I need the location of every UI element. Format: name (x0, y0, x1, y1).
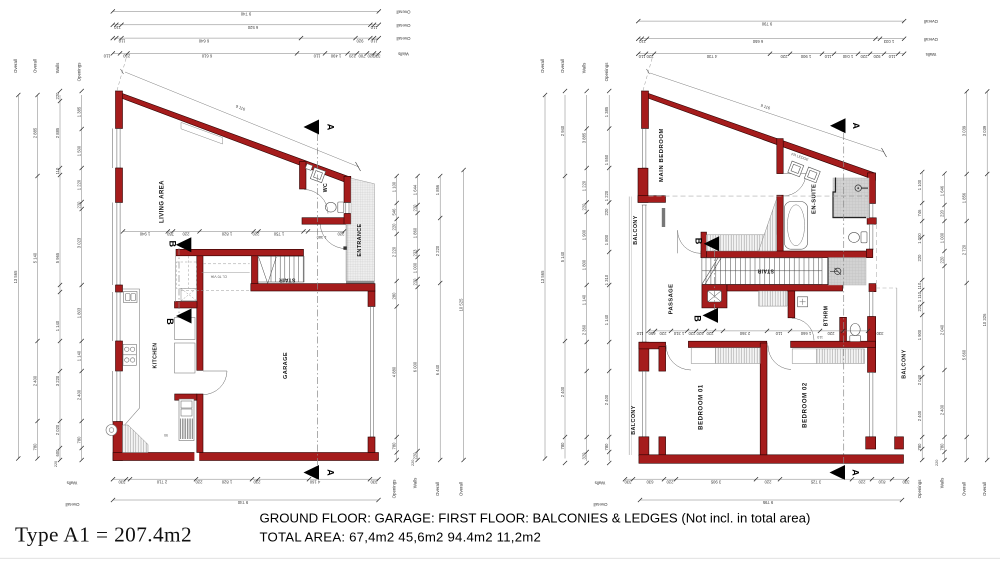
svg-text:110: 110 (55, 167, 60, 174)
svg-text:780: 780 (939, 443, 944, 451)
svg-text:220: 220 (688, 331, 696, 336)
svg-text:2 710: 2 710 (156, 479, 167, 484)
svg-text:1 140: 1 140 (77, 350, 82, 361)
svg-text:220: 220 (780, 54, 788, 59)
svg-text:Overall: Overall (924, 19, 938, 24)
svg-text:Overall: Overall (540, 59, 545, 73)
svg-text:PASSAGE: PASSAGE (669, 284, 675, 315)
svg-text:600: 600 (55, 449, 60, 457)
svg-text:220: 220 (77, 201, 82, 209)
svg-text:220: 220 (706, 331, 714, 336)
svg-text:2 720: 2 720 (962, 244, 967, 255)
svg-text:3 039: 3 039 (962, 125, 967, 136)
svg-text:A: A (326, 469, 336, 476)
svg-text:220: 220 (54, 461, 58, 467)
svg-text:700: 700 (358, 54, 366, 59)
svg-text:1 860: 1 860 (412, 227, 417, 238)
svg-text:TOTAL AREA: 67,4m2 45,6m2 94.4: TOTAL AREA: 67,4m2 45,6m2 94.4m2 11,2m2 (260, 530, 542, 545)
svg-text:220: 220 (858, 479, 866, 484)
svg-text:2 020: 2 020 (55, 424, 60, 435)
svg-text:4 880: 4 880 (392, 366, 397, 377)
svg-text:110: 110 (370, 38, 377, 43)
svg-text:1 100: 1 100 (392, 181, 397, 192)
svg-text:Overall: Overall (962, 482, 967, 496)
svg-text:2 400: 2 400 (77, 389, 82, 400)
svg-text:ENTRANCE: ENTRANCE (357, 223, 363, 256)
svg-text:330: 330 (370, 479, 378, 484)
svg-text:110: 110 (638, 39, 645, 44)
svg-text:2 220: 2 220 (435, 245, 440, 256)
svg-text:1 800: 1 800 (582, 259, 587, 270)
svg-text:1 856: 1 856 (435, 184, 440, 195)
svg-text:1 310: 1 310 (673, 331, 684, 336)
svg-text:2 400: 2 400 (560, 386, 565, 397)
svg-text:KITCHEN: KITCHEN (153, 343, 159, 369)
svg-text:220: 220 (195, 479, 203, 484)
svg-text:220: 220 (939, 256, 944, 264)
svg-text:10 525: 10 525 (458, 298, 463, 311)
svg-text:220: 220 (412, 452, 417, 460)
svg-text:110: 110 (118, 38, 125, 43)
svg-text:LIVING AREA: LIVING AREA (160, 180, 166, 223)
svg-text:110: 110 (638, 54, 645, 59)
svg-text:780: 780 (77, 436, 82, 444)
svg-text:1 385: 1 385 (77, 106, 82, 117)
svg-text:Walls: Walls (66, 481, 77, 486)
svg-text:110: 110 (113, 25, 120, 30)
svg-text:6 610: 6 610 (201, 54, 212, 59)
svg-text:Overall: Overall (397, 10, 411, 15)
svg-text:GROUND FLOOR: GARAGE: FIRST FL: GROUND FLOOR: GARAGE: FIRST FLOOR: BALCO… (260, 510, 811, 525)
svg-text:3 905: 3 905 (710, 479, 721, 484)
svg-text:2 360: 2 360 (582, 324, 587, 335)
svg-text:GARAGE: GARAGE (283, 352, 289, 379)
svg-text:1 033: 1 033 (883, 39, 894, 44)
svg-text:1 310: 1 310 (604, 274, 609, 285)
svg-text:Overall: Overall (66, 502, 80, 507)
svg-text:220: 220 (182, 232, 190, 237)
svg-text:780: 780 (560, 442, 565, 450)
svg-text:1 220: 1 220 (582, 180, 587, 191)
svg-text:3 725: 3 725 (810, 479, 821, 484)
svg-text:Type A1 = 207.4m2: Type A1 = 207.4m2 (15, 523, 192, 547)
svg-text:Walls: Walls (55, 62, 60, 73)
svg-text:330: 330 (118, 479, 126, 484)
svg-text:90: 90 (164, 433, 168, 437)
svg-text:2 040: 2 040 (917, 374, 922, 385)
svg-text:2 400: 2 400 (917, 410, 922, 421)
svg-text:780: 780 (392, 442, 397, 450)
svg-text:220: 220 (55, 92, 60, 100)
svg-text:650: 650 (648, 331, 656, 336)
svg-text:220: 220 (252, 232, 260, 237)
svg-text:A: A (851, 469, 861, 476)
svg-text:6 520: 6 520 (247, 25, 258, 30)
svg-text:5 140: 5 140 (560, 251, 565, 262)
svg-text:A: A (326, 124, 336, 131)
svg-text:780: 780 (32, 443, 37, 451)
svg-text:3 023: 3 023 (77, 237, 82, 248)
svg-text:5 660: 5 660 (962, 349, 967, 360)
svg-text:B: B (694, 238, 704, 245)
svg-text:1 000: 1 000 (412, 262, 417, 273)
svg-text:B: B (165, 318, 175, 325)
svg-text:1 490: 1 490 (330, 54, 341, 59)
svg-text:750: 750 (166, 232, 174, 237)
svg-text:220: 220 (412, 204, 417, 212)
svg-text:1 140: 1 140 (582, 294, 587, 305)
svg-text:220: 220 (337, 232, 345, 237)
svg-text:520: 520 (696, 331, 704, 336)
svg-text:1 380: 1 380 (316, 235, 327, 240)
svg-text:1 500: 1 500 (77, 145, 82, 156)
svg-text:220: 220 (917, 304, 922, 312)
svg-text:220: 220 (367, 54, 375, 59)
svg-text:Overall: Overall (32, 59, 37, 73)
svg-text:6 440: 6 440 (435, 364, 440, 375)
svg-text:220: 220 (348, 54, 356, 59)
svg-text:3 039: 3 039 (982, 125, 987, 136)
svg-text:1 140: 1 140 (604, 314, 609, 325)
svg-text:1 940: 1 940 (139, 232, 150, 237)
svg-text:546: 546 (392, 208, 397, 216)
svg-text:9 790: 9 790 (761, 21, 772, 26)
svg-text:1 644: 1 644 (412, 184, 417, 195)
svg-text:1 900: 1 900 (800, 54, 811, 59)
svg-text:1 000: 1 000 (917, 233, 922, 244)
svg-text:Openings: Openings (392, 479, 397, 499)
svg-text:1 220: 1 220 (604, 190, 609, 201)
svg-text:220: 220 (604, 208, 609, 216)
svg-text:320: 320 (582, 452, 587, 460)
svg-text:4 730: 4 730 (706, 54, 717, 59)
svg-text:10 326: 10 326 (982, 313, 987, 326)
svg-text:110: 110 (775, 331, 782, 336)
svg-text:BEDROOM 02: BEDROOM 02 (803, 382, 809, 428)
svg-text:1 000: 1 000 (939, 232, 944, 243)
svg-text:3 885: 3 885 (582, 132, 587, 143)
svg-text:330: 330 (624, 479, 632, 484)
svg-text:110: 110 (888, 54, 895, 59)
svg-text:Overall: Overall (594, 502, 608, 507)
svg-text:2 885: 2 885 (32, 127, 37, 138)
svg-text:2 885: 2 885 (55, 127, 60, 138)
svg-text:2 400: 2 400 (32, 375, 37, 386)
svg-text:EN-SUITE: EN-SUITE (811, 184, 817, 214)
svg-text:2 400: 2 400 (939, 404, 944, 415)
svg-text:280: 280 (392, 292, 397, 300)
svg-text:6 640: 6 640 (198, 38, 209, 43)
svg-text:BEDROOM 01: BEDROOM 01 (698, 384, 704, 430)
svg-text:6 650: 6 650 (752, 39, 763, 44)
svg-text:220: 220 (666, 479, 674, 484)
svg-text:4 160: 4 160 (309, 479, 320, 484)
svg-text:3 220: 3 220 (55, 375, 60, 386)
svg-text:220: 220 (659, 331, 667, 336)
svg-text:220: 220 (392, 223, 397, 231)
svg-text:810: 810 (878, 479, 886, 484)
svg-text:BTHRM: BTHRM (824, 306, 830, 327)
svg-text:110: 110 (103, 54, 110, 59)
svg-text:B: B (693, 315, 703, 322)
svg-text:1 040: 1 040 (842, 54, 853, 59)
svg-text:Openings: Openings (604, 62, 609, 82)
svg-text:1 820: 1 820 (221, 479, 232, 484)
svg-text:1 385: 1 385 (604, 106, 609, 117)
svg-text:220: 220 (935, 460, 939, 466)
svg-text:Walls: Walls (582, 62, 587, 73)
svg-text:920: 920 (356, 38, 364, 43)
svg-text:A: A (851, 122, 861, 129)
svg-text:780: 780 (917, 443, 922, 451)
svg-text:Walls: Walls (939, 477, 944, 488)
svg-text:110: 110 (636, 331, 643, 336)
svg-text:220: 220 (939, 209, 944, 217)
svg-text:1 646: 1 646 (939, 185, 944, 196)
svg-text:1 100: 1 100 (917, 179, 922, 190)
svg-text:2 360: 2 360 (739, 331, 750, 336)
svg-text:220: 220 (253, 479, 261, 484)
svg-text:5 965: 5 965 (55, 252, 60, 263)
svg-text:110: 110 (824, 54, 831, 59)
svg-text:Overall: Overall (560, 59, 565, 73)
svg-text:330: 330 (902, 479, 910, 484)
svg-text:630: 630 (646, 479, 654, 484)
svg-text:1 820: 1 820 (221, 232, 232, 237)
svg-text:2 940: 2 940 (560, 125, 565, 136)
svg-text:220: 220 (917, 254, 922, 262)
svg-text:1 750: 1 750 (273, 232, 284, 237)
svg-text:2 220: 2 220 (392, 246, 397, 257)
svg-text:220: 220 (646, 54, 654, 59)
svg-text:110: 110 (313, 54, 320, 59)
svg-text:Overall: Overall (13, 59, 18, 73)
svg-text:MAIN BEDROOM: MAIN BEDROOM (659, 128, 665, 182)
svg-text:220: 220 (412, 278, 417, 286)
svg-text:110: 110 (917, 282, 922, 289)
svg-text:WC: WC (323, 183, 329, 192)
svg-text:6 000: 6 000 (412, 361, 417, 372)
svg-text:2 400: 2 400 (604, 394, 609, 405)
svg-text:Openings: Openings (917, 479, 922, 499)
svg-text:1 856: 1 856 (962, 192, 967, 203)
svg-text:220: 220 (582, 203, 587, 211)
svg-text:1 900: 1 900 (582, 229, 587, 240)
svg-text:Overall: Overall (982, 482, 987, 496)
svg-text:110: 110 (817, 335, 823, 339)
svg-text:BALCONY: BALCONY (631, 405, 637, 434)
svg-text:STAIR: STAIR (279, 276, 296, 282)
svg-text:1 803: 1 803 (77, 307, 82, 318)
svg-text:330: 330 (876, 331, 884, 336)
svg-text:13 565: 13 565 (13, 270, 18, 283)
svg-text:Overall: Overall (924, 37, 938, 42)
svg-text:BALCONY: BALCONY (902, 349, 908, 378)
svg-text:B: B (167, 241, 177, 248)
svg-text:9 740: 9 740 (240, 12, 251, 17)
svg-text:Overall: Overall (397, 23, 411, 28)
svg-text:1 800: 1 800 (604, 234, 609, 245)
svg-text:5 140: 5 140 (32, 252, 37, 263)
svg-text:746: 746 (917, 209, 922, 217)
svg-text:13 565: 13 565 (540, 270, 545, 283)
svg-text:Walls: Walls (412, 477, 417, 488)
svg-text:330: 330 (373, 54, 381, 59)
svg-text:STAIR: STAIR (757, 268, 774, 274)
svg-text:1 110: 1 110 (917, 291, 922, 302)
svg-text:220: 220 (860, 54, 868, 59)
svg-text:110: 110 (370, 25, 377, 30)
svg-text:Openings: Openings (77, 62, 82, 82)
svg-text:220: 220 (411, 460, 415, 466)
svg-text:Walls: Walls (925, 52, 936, 57)
svg-text:Walls: Walls (397, 52, 408, 57)
svg-text:CL 70 VIA: CL 70 VIA (210, 275, 227, 279)
svg-text:1 140: 1 140 (55, 320, 60, 331)
svg-text:BALCONY: BALCONY (633, 215, 639, 244)
svg-text:1 660: 1 660 (800, 331, 811, 336)
svg-text:223: 223 (412, 249, 417, 257)
svg-text:Walls: Walls (594, 481, 605, 486)
svg-text:Overall: Overall (435, 482, 440, 496)
svg-text:780: 780 (604, 443, 609, 451)
svg-text:1 900: 1 900 (917, 329, 922, 340)
svg-text:Overall: Overall (458, 482, 463, 496)
svg-text:220: 220 (827, 331, 835, 336)
svg-text:920: 920 (873, 54, 881, 59)
svg-text:Overall: Overall (397, 36, 411, 41)
svg-text:9 795: 9 795 (762, 500, 773, 505)
svg-text:2 040: 2 040 (939, 324, 944, 335)
svg-text:220: 220 (764, 479, 772, 484)
svg-text:1 220: 1 220 (77, 179, 82, 190)
svg-text:9 740: 9 740 (237, 500, 248, 505)
svg-text:1 550: 1 550 (604, 154, 609, 165)
svg-text:220: 220 (123, 54, 131, 59)
